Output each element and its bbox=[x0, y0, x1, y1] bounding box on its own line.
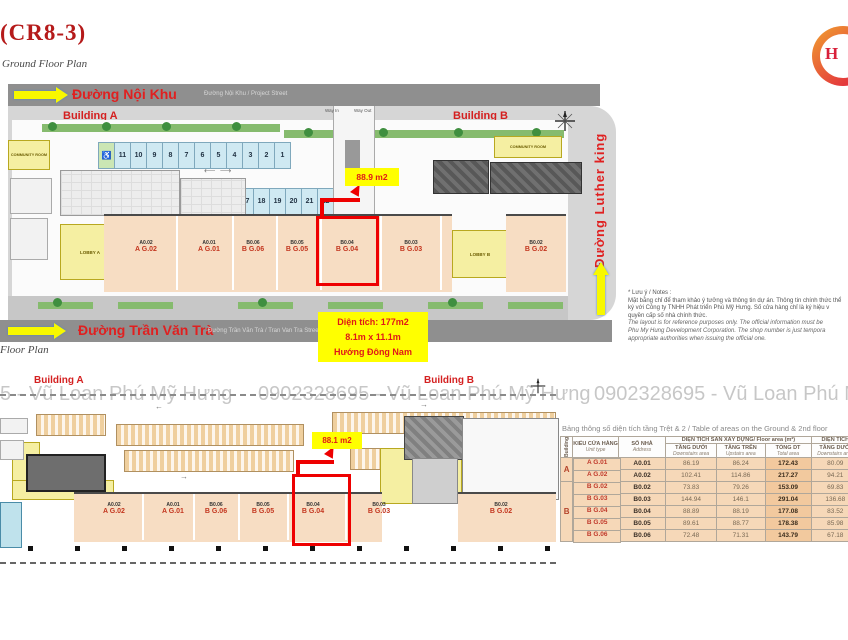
col-total: TỔNG DT Total area bbox=[765, 444, 811, 458]
phu-my-hung-logo: H bbox=[812, 26, 848, 86]
area-table-section: Bảng thông số diện tích tầng Trệt & 2 / … bbox=[560, 424, 848, 542]
sidewalk-planter bbox=[118, 302, 173, 309]
callout-arrow-line bbox=[320, 198, 360, 202]
table-row: B G.05B0.0589.6188.77178.3885.98 bbox=[561, 518, 848, 530]
cell-downstairs-2: 67.18 bbox=[811, 530, 848, 542]
right-arrow-icon bbox=[14, 87, 68, 103]
area-table: Building KIỂU CỬA HÀNG Unit type SỐ NHÀ … bbox=[560, 436, 848, 542]
cell-downstairs: 88.89 bbox=[666, 506, 717, 518]
compass-icon bbox=[554, 110, 576, 132]
road-noi-khu-name: Đường Nội Khu bbox=[72, 86, 177, 102]
cell-total: 291.04 bbox=[765, 494, 811, 506]
second-floor-plan: ← → → ← A0.02A G.02A0.01A G.01B0.06B G.0… bbox=[0, 400, 558, 568]
cell-downstairs: 73.83 bbox=[666, 482, 717, 494]
column-marker bbox=[357, 546, 362, 551]
cell-address: B0.06 bbox=[618, 530, 665, 542]
second-floor-plan-label: Floor Plan bbox=[0, 344, 49, 356]
road-noi-khu-subtitle: Đường Nội Khu / Project Street bbox=[204, 91, 287, 97]
up-arrow-icon bbox=[593, 262, 609, 316]
floorplan-page: (CR8-3) Ground Floor Plan H Đường Nội Kh… bbox=[0, 0, 848, 640]
unit-name: A G.02 bbox=[123, 246, 169, 253]
building-cell: B bbox=[561, 482, 573, 542]
tree-icon bbox=[258, 298, 267, 307]
area-callout-top: 88.9 m2 bbox=[345, 168, 399, 186]
callout-arrow-line bbox=[320, 198, 324, 218]
col-downstairs: TẦNG DƯỚI Downstairs area bbox=[666, 444, 717, 458]
cell-total: 172.43 bbox=[765, 458, 811, 470]
cell-downstairs-2: 80.09 bbox=[811, 458, 848, 470]
cell-address: A0.02 bbox=[618, 470, 665, 482]
road-noi-khu-bar: Đường Nội Khu Đường Nội Khu / Project St… bbox=[8, 84, 600, 106]
table-row: B G.04B0.0488.8988.19177.0883.52 bbox=[561, 506, 848, 518]
unit-name: B G.02 bbox=[513, 246, 559, 253]
col-group-floor-area: DIỆN TÍCH SÀN XÂY DỰNG/ Floor area (m²) bbox=[666, 437, 811, 444]
note-line: appropriate authorities when issuing the… bbox=[628, 336, 848, 344]
unit-bg06: B0.06B G.06 bbox=[230, 240, 276, 253]
cell-upstairs: 88.19 bbox=[716, 506, 765, 518]
column-marker bbox=[216, 546, 221, 551]
sidewalk-planter bbox=[508, 302, 563, 309]
cell-total: 143.79 bbox=[765, 530, 811, 542]
cell-upstairs: 79.26 bbox=[716, 482, 765, 494]
cell-downstairs: 144.94 bbox=[666, 494, 717, 506]
cell-downstairs: 89.61 bbox=[666, 518, 717, 530]
cell-total: 177.08 bbox=[765, 506, 811, 518]
column-marker bbox=[75, 546, 80, 551]
highlighted-unit-bg04 bbox=[316, 216, 379, 286]
cell-downstairs-2: 94.21 bbox=[811, 470, 848, 482]
building-cell: A bbox=[561, 458, 573, 482]
cell-total: 178.38 bbox=[765, 518, 811, 530]
cell-downstairs: 72.48 bbox=[666, 530, 717, 542]
annotation-orientation: Hướng Đông Nam bbox=[318, 345, 428, 360]
cell-downstairs-2: 69.83 bbox=[811, 482, 848, 494]
column-marker bbox=[310, 546, 315, 551]
unit-bg05: B0.05B G.05 bbox=[274, 240, 320, 253]
note-line: ký với Công ty TNHH Phát triển Phú Mỹ Hư… bbox=[628, 305, 848, 313]
column-marker bbox=[498, 546, 503, 551]
ground-floor-plan: Building A Building B COMMUNITY ROOM COM… bbox=[8, 106, 616, 320]
sidewalk bbox=[8, 296, 568, 320]
cell-downstairs-2: 136.68 bbox=[811, 494, 848, 506]
col-group-2: DIỆN TÍCH bbox=[811, 437, 848, 444]
unit-ag01: A0.01A G.01 bbox=[186, 240, 232, 253]
watermark: 0902328695 - Vũ Loan Phú M bbox=[594, 383, 848, 406]
road-luther-king-name: Đường Luther king bbox=[592, 128, 607, 268]
cell-total: 217.27 bbox=[765, 470, 811, 482]
notes-block: * Lưu ý / Notes :Mặt bằng chỉ để tham kh… bbox=[628, 290, 848, 343]
column-marker bbox=[28, 546, 33, 551]
note-line: The layout is for reference purposes onl… bbox=[628, 320, 848, 328]
cell-downstairs-2: 83.52 bbox=[811, 506, 848, 518]
unit-name: B G.06 bbox=[230, 246, 276, 253]
table-row: A G.02A0.02102.41114.86217.2794.21 bbox=[561, 470, 848, 482]
column-marker bbox=[263, 546, 268, 551]
col-address: SỐ NHÀ Address bbox=[618, 437, 665, 458]
logo-letter: H bbox=[825, 44, 838, 64]
cell-total: 153.09 bbox=[765, 482, 811, 494]
road-tran-van-tra-name: Đường Trần Văn Trà bbox=[78, 322, 213, 338]
table-row: B G.06B0.0672.4871.31143.7967.18 bbox=[561, 530, 848, 542]
note-line: * Lưu ý / Notes : bbox=[628, 290, 848, 298]
cell-upstairs: 88.77 bbox=[716, 518, 765, 530]
unit-labels-top: A0.02A G.02A0.01A G.01B0.06B G.06B0.05B … bbox=[8, 106, 616, 320]
cell-upstairs: 71.31 bbox=[716, 530, 765, 542]
unit-name: B G.05 bbox=[274, 246, 320, 253]
cell-upstairs: 146.1 bbox=[716, 494, 765, 506]
table-row: B G.03B0.03144.94146.1291.04136.68 bbox=[561, 494, 848, 506]
tree-icon bbox=[448, 298, 457, 307]
col-upstairs: TẦNG TRÊN Upstairs area bbox=[716, 444, 765, 458]
cell-address: A0.01 bbox=[618, 458, 665, 470]
cell-address: B0.03 bbox=[618, 494, 665, 506]
project-code: (CR8-3) bbox=[0, 20, 86, 46]
unit-bg03: B0.03B G.03 bbox=[388, 240, 434, 253]
col-building: Building bbox=[561, 437, 573, 458]
cell-downstairs: 102.41 bbox=[666, 470, 717, 482]
col-downstairs-2: TẦNG DƯỚI Downstairs area bbox=[811, 444, 848, 458]
column-marker bbox=[122, 546, 127, 551]
cell-address: B0.05 bbox=[618, 518, 665, 530]
unit-name: B G.03 bbox=[388, 246, 434, 253]
table-row: AA G.01A0.0186.1986.24172.4380.09 bbox=[561, 458, 848, 470]
unit-name: A G.01 bbox=[186, 246, 232, 253]
column-marker bbox=[169, 546, 174, 551]
sidewalk-planter bbox=[38, 302, 93, 309]
cell-address: B0.02 bbox=[618, 482, 665, 494]
cell-downstairs: 86.19 bbox=[666, 458, 717, 470]
column-marker bbox=[451, 546, 456, 551]
cell-upstairs: 86.24 bbox=[716, 458, 765, 470]
cell-upstairs: 114.86 bbox=[716, 470, 765, 482]
table-row: BB G.02B0.0273.8379.26153.0969.83 bbox=[561, 482, 848, 494]
cell-downstairs-2: 85.98 bbox=[811, 518, 848, 530]
cell-address: B0.04 bbox=[618, 506, 665, 518]
table-title: Bảng thông số diện tích tầng Trệt & 2 / … bbox=[562, 424, 848, 433]
ground-floor-plan-label: Ground Floor Plan bbox=[2, 58, 87, 70]
column-marker bbox=[404, 546, 409, 551]
note-line: quyền cấp số nhà chính thức. bbox=[628, 313, 848, 321]
column-grid bbox=[0, 400, 558, 568]
unit-bg02: B0.02B G.02 bbox=[513, 240, 559, 253]
annotation-dimensions: 8.1m x 11.1m bbox=[318, 330, 428, 345]
tree-icon bbox=[53, 298, 62, 307]
plan-boundary-dashed bbox=[0, 562, 556, 564]
cell-unit-type: B G.06 bbox=[573, 530, 621, 543]
note-line: Phu My Hung Development Corporation. The… bbox=[628, 328, 848, 336]
area-annotation-box: Diện tích: 177m2 8.1m x 11.1m Hướng Đông… bbox=[318, 312, 428, 362]
right-arrow-icon bbox=[8, 323, 66, 339]
plan-boundary-dashed bbox=[0, 394, 556, 396]
annotation-area: Diện tích: 177m2 bbox=[318, 315, 428, 330]
column-marker bbox=[545, 546, 550, 551]
road-tran-van-tra-subtitle: Đường Trần Văn Trà / Tran Van Tra Street bbox=[208, 328, 320, 334]
sidewalk-planter bbox=[328, 302, 383, 309]
col-unit-type: KIỂU CỬA HÀNG Unit type bbox=[573, 437, 619, 458]
road-tran-van-tra-bar: Đường Trần Văn Trà Đường Trần Văn Trà / … bbox=[0, 320, 612, 342]
unit-ag02: A0.02A G.02 bbox=[123, 240, 169, 253]
